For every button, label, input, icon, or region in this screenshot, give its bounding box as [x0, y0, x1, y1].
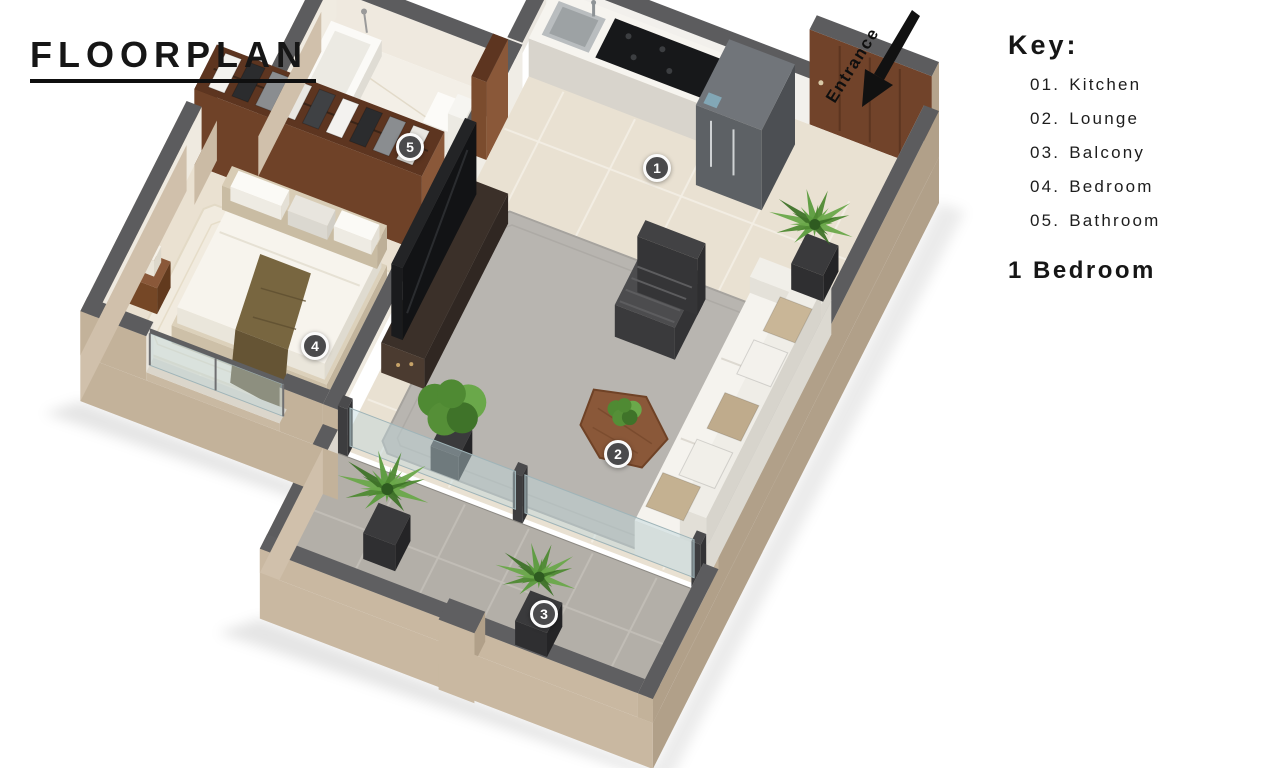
- entrance-arrow-icon: [812, 4, 942, 126]
- key-legend: Key: 01. Kitchen 02. Lounge 03. Balcony …: [1008, 30, 1258, 285]
- page-title: FLOORPLAN: [30, 36, 316, 83]
- room-marker-5-bathroom: 5: [396, 133, 424, 161]
- floorplan-page: FLOORPLAN Entrance Key: 01. Kitchen 02. …: [0, 0, 1280, 768]
- key-item-kitchen: 01. Kitchen: [1030, 75, 1258, 95]
- key-item-bedroom: 04. Bedroom: [1030, 177, 1258, 197]
- key-item-label: Bedroom: [1069, 177, 1153, 197]
- key-item-label: Balcony: [1069, 143, 1145, 163]
- key-list: 01. Kitchen 02. Lounge 03. Balcony 04. B…: [1008, 75, 1258, 231]
- key-item-number: 05.: [1030, 211, 1060, 231]
- room-marker-3-balcony: 3: [530, 600, 558, 628]
- key-item-number: 01.: [1030, 75, 1060, 95]
- entrance-callout: Entrance: [812, 4, 942, 126]
- key-item-number: 03.: [1030, 143, 1060, 163]
- room-marker-2-lounge: 2: [604, 440, 632, 468]
- key-item-lounge: 02. Lounge: [1030, 109, 1258, 129]
- key-heading: Key:: [1008, 30, 1258, 61]
- key-item-number: 04.: [1030, 177, 1060, 197]
- key-item-balcony: 03. Balcony: [1030, 143, 1258, 163]
- key-item-label: Kitchen: [1069, 75, 1141, 95]
- key-summary: 1 Bedroom: [1008, 257, 1258, 285]
- room-marker-4-bedroom: 4: [301, 332, 329, 360]
- room-marker-1-kitchen: 1: [643, 154, 671, 182]
- key-item-number: 02.: [1030, 109, 1060, 129]
- key-item-label: Bathroom: [1069, 211, 1160, 231]
- key-item-label: Lounge: [1069, 109, 1139, 129]
- key-item-bathroom: 05. Bathroom: [1030, 211, 1258, 231]
